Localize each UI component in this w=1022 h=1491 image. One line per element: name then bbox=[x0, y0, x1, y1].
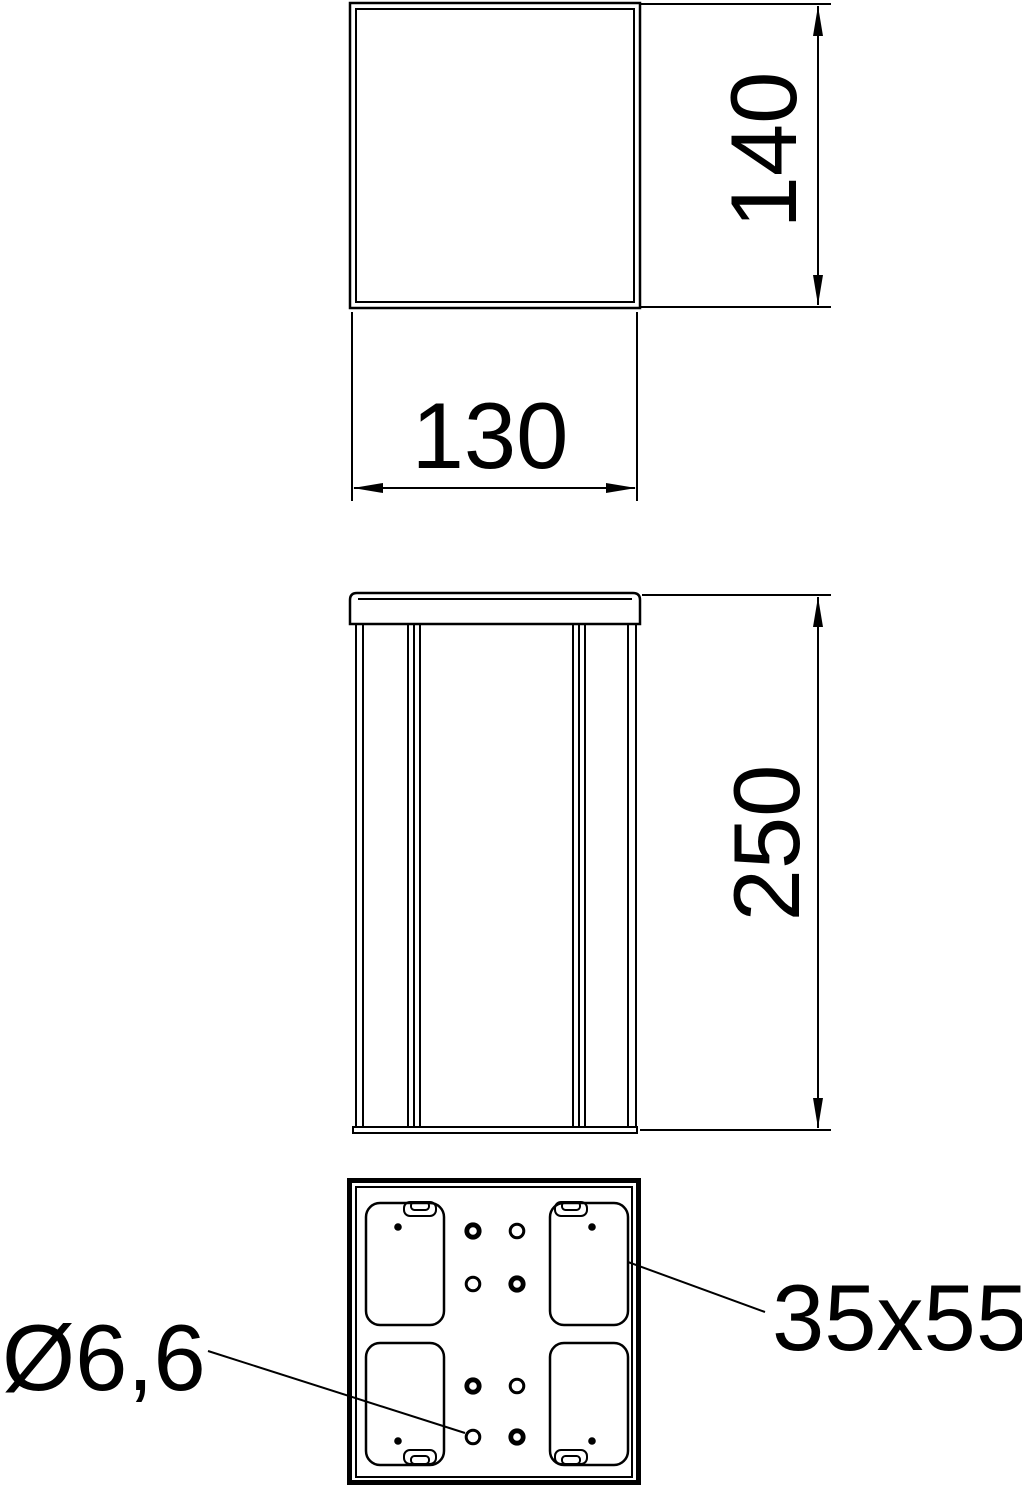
technical-drawing-page: 140 130 250 bbox=[0, 0, 1022, 1491]
dimension-label-130: 130 bbox=[412, 383, 569, 488]
dimension-label-140: 140 bbox=[711, 72, 816, 229]
pilot-dot bbox=[394, 1437, 402, 1445]
technical-drawing: 140 130 250 bbox=[0, 0, 1022, 1491]
hole-diameter-label: Ø6,6 bbox=[2, 1305, 206, 1410]
pilot-dot bbox=[588, 1223, 596, 1231]
cutout-size-label: 35x55 bbox=[772, 1265, 1022, 1370]
pilot-dot bbox=[394, 1223, 402, 1231]
dimension-label-250: 250 bbox=[714, 765, 819, 922]
pilot-dot bbox=[588, 1437, 596, 1445]
